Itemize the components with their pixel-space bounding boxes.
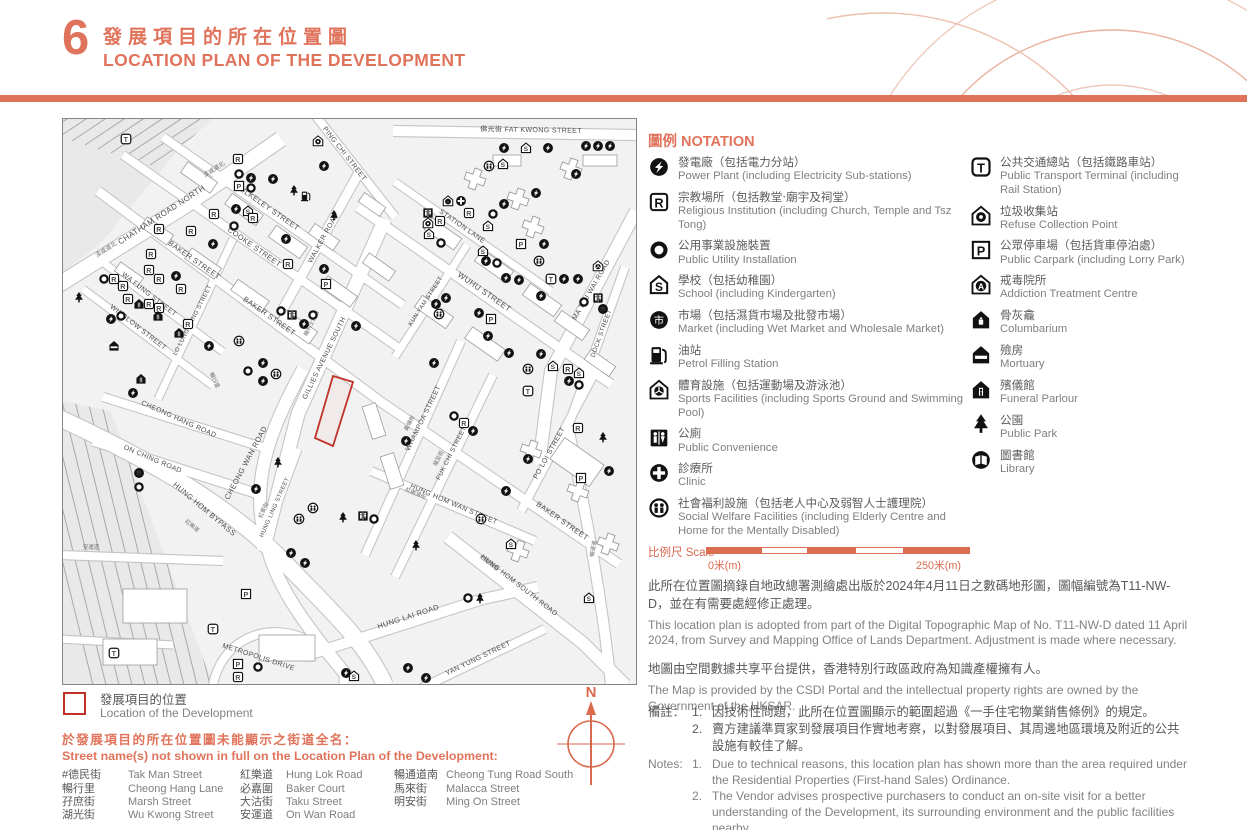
public-utility-icon [575, 381, 582, 388]
svg-text:R: R [146, 267, 152, 275]
transport-terminal-icon: T [121, 134, 131, 144]
power-plant-icon [474, 308, 484, 318]
power-plant-icon [501, 486, 511, 496]
public-utility-icon [117, 312, 124, 319]
street-name-en: Taku Street [286, 796, 394, 808]
street-name-en: Hung Lok Road [286, 769, 394, 781]
legend-label-zh: 學校（包括幼稚園） [678, 273, 836, 288]
legend-item-mortuary: 殮房Mortuary [970, 343, 1188, 372]
legend-label-en: School (including Kindergarten) [678, 288, 836, 302]
public-convenience-icon [593, 293, 602, 302]
svg-text:P: P [243, 591, 248, 599]
religious-institution-icon: R [118, 281, 127, 291]
power-plant-icon [403, 663, 413, 673]
carpark-icon: P [321, 279, 330, 289]
funeral-parlour-icon [970, 379, 992, 401]
legend-label-en: Petrol Filling Station [678, 358, 778, 372]
street-name-zh: 暢通道南 [394, 769, 446, 781]
svg-text:市: 市 [136, 469, 142, 477]
public-park-icon [970, 414, 992, 436]
religious-institution-icon: R [283, 259, 292, 269]
legend-label-en: Power Plant (including Electricity Sub-s… [678, 170, 912, 184]
refuse-collection-point-icon [970, 205, 992, 227]
religious-institution-icon: R [563, 364, 572, 374]
social-welfare-facilities-icon [648, 497, 670, 519]
public-utility-icon [493, 259, 500, 266]
religious-institution-icon: R [233, 672, 242, 682]
svg-text:市: 市 [600, 305, 606, 313]
legend-label-en: Mortuary [1000, 358, 1045, 372]
carpark-icon: P [233, 659, 242, 669]
power-plant-icon [208, 239, 218, 249]
map-frame: CHATHAM ROAD NORTH漆咸道北漆咸道北PING CHI STREE… [62, 118, 637, 685]
note-number: 1. [692, 756, 712, 772]
legend-item-addiction-treatment-centre: A戒毒院所Addiction Treatment Centre [970, 273, 1188, 302]
svg-text:R: R [146, 301, 152, 309]
svg-text:T: T [526, 388, 531, 396]
svg-text:R: R [285, 261, 291, 269]
power-plant-icon [536, 349, 546, 359]
scale-bar [706, 547, 970, 554]
street-name-zh [394, 809, 446, 821]
svg-text:R: R [235, 156, 241, 164]
public-utility-icon [309, 311, 316, 318]
public-convenience-icon [423, 208, 432, 217]
note-item-en: The Vendor advises prospective purchaser… [712, 788, 1191, 830]
svg-text:R: R [461, 420, 467, 428]
legend-item-social-welfare-facilities: 社會福利設施（包括老人中心及弱智人士護理院）Social Welfare Fac… [648, 496, 970, 539]
section-number: 6 [62, 14, 89, 63]
street-name-zh: 孖庶街 [62, 796, 128, 808]
street-name-zh: 安運道 [240, 809, 286, 821]
location-marker-label-en: Location of the Development [100, 706, 253, 720]
religious-institution-icon: R [154, 224, 163, 234]
public-utility-icon [100, 275, 107, 282]
religious-institution-icon: R [573, 423, 582, 433]
power-plant-icon [501, 273, 511, 283]
power-plant-icon [106, 314, 116, 324]
legend-label-en: Clinic [678, 476, 713, 490]
svg-text:S: S [481, 249, 486, 256]
legend-item-school: S學校（包括幼稚園）School (including Kindergarten… [648, 273, 970, 302]
decorative-arcs [827, 0, 1247, 95]
social-welfare-icon [308, 503, 318, 513]
svg-text:R: R [250, 215, 256, 223]
svg-text:S: S [486, 224, 491, 231]
street-label: 安運道 [83, 543, 100, 551]
source-paragraph-en-1: This location plan is adopted from part … [648, 618, 1188, 650]
svg-text:S: S [509, 542, 514, 549]
power-plant-icon [286, 548, 296, 558]
religious-institution-icon: R [183, 319, 192, 329]
legend-label-zh: 公廁 [678, 426, 778, 441]
power-plant-icon [171, 271, 181, 281]
power-plant-icon [504, 348, 514, 358]
page-title-zh: 發展項目的所在位置圖 [103, 22, 353, 49]
svg-text:P: P [518, 241, 523, 249]
legend-label-en: Sports Facilities (including Sports Grou… [678, 393, 970, 421]
svg-text:S: S [577, 371, 582, 378]
social-welfare-icon [534, 256, 544, 266]
clinic-icon [456, 196, 466, 206]
legend-label-zh: 公眾停車場（包括貨車停泊處） [1000, 238, 1185, 253]
power-plant-icon [300, 558, 310, 568]
transport-terminal-icon: T [208, 624, 218, 634]
social-welfare-icon [294, 514, 304, 524]
religious-institution-icon: R [233, 154, 242, 164]
public-convenience-icon [648, 427, 670, 449]
power-plant-icon [258, 358, 268, 368]
legend-label-en: Refuse Collection Point [1000, 219, 1117, 233]
svg-text:R: R [235, 674, 241, 682]
legend-item-power-plant: 發電廠（包括電力分站）Power Plant (including Electr… [648, 155, 970, 184]
legend-label-en: Funeral Parlour [1000, 393, 1078, 407]
svg-text:R: R [565, 366, 571, 374]
religious-institution-icon: R [435, 216, 444, 226]
svg-text:S: S [551, 364, 556, 371]
legend-item-refuse-collection-point: 垃圾收集站Refuse Collection Point [970, 204, 1188, 233]
power-plant-icon [571, 169, 581, 179]
street-name-en: Wu Kwong Street [128, 809, 240, 821]
notes-block: 備註： 1. 因技術性問題，此所在位置圖顯示的範圍超過《一手住宅物業銷售條例》的… [648, 704, 1191, 830]
social-welfare-icon [271, 369, 281, 379]
street-name-en: Cheong Hang Lane [128, 783, 240, 795]
power-plant-icon [581, 141, 591, 151]
power-plant-icon [431, 299, 441, 309]
power-plant-icon [499, 143, 509, 153]
legend-label-en: Public Carpark (including Lorry Park) [1000, 254, 1185, 268]
legend-label-en: Religious Institution (including Church,… [678, 205, 970, 233]
street-name-row: 湖光街Wu Kwong Street安運道On Wan Road [62, 809, 647, 821]
power-plant-icon [604, 466, 614, 476]
power-plant-icon [514, 275, 524, 285]
street-name-zh: 明安街 [394, 796, 446, 808]
accent-divider-bar [0, 95, 1247, 102]
street-name-zh: 馬來街 [394, 783, 446, 795]
carpark-icon: P [234, 181, 243, 191]
legend-label-zh: 戒毒院所 [1000, 273, 1138, 288]
power-plant-icon [351, 321, 361, 331]
legend-item-religious-institution: R宗教場所（包括教堂‧廟宇及祠堂）Religious Institution (… [648, 190, 970, 233]
legend-label-zh: 殯儀館 [1000, 378, 1078, 393]
power-plant-icon [429, 358, 439, 368]
street-name-en: Marsh Street [128, 796, 240, 808]
notation-title: 圖例 NOTATION [648, 130, 755, 151]
street-name-en: On Wan Road [286, 809, 394, 821]
carpark-icon: P [516, 239, 525, 249]
power-plant-icon [128, 388, 138, 398]
legend-label-en: Market (including Wet Market and Wholesa… [678, 323, 944, 337]
legend-item-public-convenience: 公廁Public Convenience [648, 426, 970, 455]
svg-text:市: 市 [654, 314, 664, 327]
market-icon: 市 [648, 309, 670, 331]
power-plant-icon [204, 341, 214, 351]
mortuary-icon [970, 344, 992, 366]
power-plant-icon [251, 484, 261, 494]
note-item-zh: 賣方建議準買家到發展項目作實地考察，以對發展項目、其周邊地區環境及附近的公共設施… [712, 721, 1191, 755]
public-utility-icon [370, 515, 377, 522]
library-icon [970, 449, 992, 471]
religious-institution-icon: R [248, 213, 257, 223]
power-plant-icon [499, 199, 509, 209]
religious-institution-icon: R [459, 418, 468, 428]
svg-text:R: R [156, 305, 162, 313]
legend-item-sports-facilities: 體育設施（包括運動場及游泳池）Sports Facilities (includ… [648, 378, 970, 421]
note-number: 1. [692, 704, 712, 721]
power-plant-icon [468, 426, 478, 436]
legend-label-zh: 公用事業設施裝置 [678, 238, 797, 253]
legend-item-public-park: 公園Public Park [970, 413, 1188, 442]
transport-terminal-icon: T [523, 386, 533, 396]
legend-label-zh: 垃圾收集站 [1000, 204, 1117, 219]
religious-institution-icon: R [154, 303, 163, 313]
svg-text:T: T [124, 136, 129, 144]
legend-label-en: Public Utility Installation [678, 254, 797, 268]
scale-end-value: 250米(m) [916, 557, 961, 573]
street-name-en: Tak Man Street [128, 769, 240, 781]
public-utility-icon [489, 210, 496, 217]
power-plant-icon [539, 239, 549, 249]
religious-institution-icon: R [154, 274, 163, 284]
legend-label-en: Public Park [1000, 428, 1057, 442]
development-location-swatch [63, 692, 86, 715]
columbarium-icon [970, 309, 992, 331]
public-utility-icon [580, 298, 587, 305]
social-welfare-icon [476, 514, 486, 524]
public-transport-terminal-icon: T [970, 156, 992, 178]
petrol-filling-station-icon [648, 344, 670, 366]
svg-text:R: R [156, 276, 162, 284]
svg-text:R: R [575, 425, 581, 433]
legend-label-en: Addiction Treatment Centre [1000, 288, 1138, 302]
social-welfare-icon [484, 161, 494, 171]
school-icon: S [648, 274, 670, 296]
svg-text:R: R [120, 283, 126, 291]
power-plant-icon [401, 436, 411, 446]
street-name-zh: 大沽街 [240, 796, 286, 808]
public-utility-installation-icon [648, 239, 670, 261]
power-plant-icon [268, 174, 278, 184]
power-plant-icon [573, 274, 583, 284]
svg-text:R: R [654, 195, 663, 210]
svg-text:S: S [587, 596, 592, 603]
source-paragraph-zh-2: 地圖由空間數據共享平台提供，香港特別行政區政府為知識產權擁有人。 [648, 661, 1188, 679]
power-plant-icon [593, 141, 603, 151]
public-utility-icon [464, 594, 471, 601]
power-plant-icon [536, 291, 546, 301]
carpark-icon: P [486, 314, 495, 324]
religious-institution-icon: R [209, 209, 218, 219]
religious-institution-icon: R [648, 191, 670, 213]
street-name-en: Ming On Street [446, 796, 586, 808]
transport-terminal-icon: T [546, 274, 556, 284]
scale-start-value: 0米(m) [708, 557, 741, 573]
religious-institution-icon: R [146, 249, 155, 259]
power-plant-icon [281, 234, 291, 244]
legend-label-zh: 診療所 [678, 461, 713, 476]
power-plant-icon [421, 673, 431, 683]
north-arrow-compass: N [552, 680, 630, 794]
public-carpark-icon: P [970, 239, 992, 261]
note-number: 2. [692, 788, 712, 804]
legend-label-en: Columbarium [1000, 323, 1067, 337]
public-utility-icon [235, 170, 242, 177]
public-utility-icon [450, 412, 457, 419]
religious-institution-icon: R [144, 265, 153, 275]
svg-text:R: R [188, 228, 194, 236]
svg-text:R: R [178, 286, 184, 294]
power-plant-icon [258, 376, 268, 386]
svg-text:T: T [549, 276, 554, 284]
street-name-zh: 暢行里 [62, 783, 128, 795]
power-plant-icon [231, 204, 241, 214]
svg-text:S: S [501, 162, 506, 169]
power-plant-icon [441, 293, 451, 303]
power-plant-icon [246, 173, 256, 183]
social-welfare-icon [234, 336, 244, 346]
svg-text:A: A [446, 199, 450, 205]
addiction-treatment-centre-icon: A [970, 274, 992, 296]
legend-label-zh: 骨灰龕 [1000, 308, 1067, 323]
social-welfare-icon [523, 364, 533, 374]
market-icon: 市 [134, 468, 144, 478]
svg-text:T: T [211, 626, 216, 634]
note-number: 2. [692, 721, 712, 738]
public-utility-icon [437, 239, 444, 246]
legend-item-funeral-parlour: 殯儀館Funeral Parlour [970, 378, 1188, 407]
street-name-en [446, 809, 586, 821]
legend-label-en: Social Welfare Facilities (including Eld… [678, 511, 970, 539]
power-plant-icon [299, 319, 309, 329]
legend-label-en: Library [1000, 463, 1035, 477]
svg-text:R: R [185, 321, 191, 329]
legend-label-en: Public Transport Terminal (including Rai… [1000, 170, 1188, 198]
legend-item-public-carpark: P公眾停車場（包括貨車停泊處）Public Carpark (including… [970, 238, 1188, 267]
legend-label-zh: 宗教場所（包括教堂‧廟宇及祠堂） [678, 190, 970, 205]
svg-text:S: S [352, 674, 357, 681]
legend-label-zh: 公園 [1000, 413, 1057, 428]
svg-text:R: R [111, 276, 117, 284]
religious-institution-icon: R [144, 299, 153, 309]
svg-text:P: P [488, 316, 493, 324]
legend-label-en: Public Convenience [678, 442, 778, 456]
note-item-zh: 因技術性問題，此所在位置圖顯示的範圍超過《一手住宅物業銷售條例》的規定。 [712, 704, 1191, 721]
power-plant-icon [531, 188, 541, 198]
legend-column-1: 發電廠（包括電力分站）Power Plant (including Electr… [648, 155, 970, 545]
religious-institution-icon: R [109, 274, 118, 284]
svg-text:A: A [978, 282, 984, 292]
power-plant-icon [559, 274, 569, 284]
svg-text:T: T [977, 160, 985, 175]
public-utility-icon [230, 222, 237, 229]
notes-label-zh: 備註： [648, 704, 692, 721]
power-plant-icon [481, 256, 491, 266]
svg-text:S: S [427, 232, 432, 239]
scale-bar-row: 比例尺 Scale 0米(m) 250米(m) [648, 544, 1188, 574]
power-plant-icon [483, 331, 493, 341]
market-icon: 市 [598, 304, 608, 314]
public-utility-icon [244, 367, 251, 374]
power-plant-icon [523, 454, 533, 464]
legend-item-library: 圖書館Library [970, 448, 1188, 477]
legend-item-columbarium: 骨灰龕Columbarium [970, 308, 1188, 337]
public-utility-icon [277, 307, 284, 314]
power-plant-icon [543, 143, 553, 153]
legend-item-market: 市市場（包括濕貨市場及批發市場）Market (including Wet Ma… [648, 308, 970, 337]
legend-item-petrol-filling-station: 油站Petrol Filling Station [648, 343, 970, 372]
public-convenience-icon [358, 511, 367, 520]
street-name-zh: 紅樂道 [240, 769, 286, 781]
legend-label-zh: 體育設施（包括運動場及游泳池） [678, 378, 970, 393]
clinic-icon [648, 462, 670, 484]
power-plant-icon [319, 264, 329, 274]
notes-label-en: Notes: [648, 756, 692, 772]
sports-facilities-icon [648, 379, 670, 401]
svg-text:T: T [112, 650, 117, 658]
legend-label-zh: 殮房 [1000, 343, 1045, 358]
location-plan-map: CHATHAM ROAD NORTH漆咸道北漆咸道北PING CHI STREE… [63, 119, 636, 684]
street-name-zh: 必嘉圍 [240, 783, 286, 795]
svg-text:R: R [437, 218, 443, 226]
svg-text:P: P [578, 475, 583, 483]
source-paragraph-zh-1: 此所在位置圖摘錄自地政總署測繪處出版於2024年4月11日之數碼地形圖，圖幅編號… [648, 578, 1188, 614]
note-item-en: Due to technical reasons, this location … [712, 756, 1191, 788]
legend-item-public-transport-terminal: T公共交通總站（包括鐵路車站）Public Transport Terminal… [970, 155, 1188, 198]
religious-institution-icon: R [123, 294, 132, 304]
religious-institution-icon: R [464, 208, 473, 218]
svg-text:R: R [156, 226, 162, 234]
legend-label-zh: 公共交通總站（包括鐵路車站） [1000, 155, 1188, 170]
legend-label-zh: 市場（包括濕貨市場及批發市場） [678, 308, 944, 323]
svg-text:P: P [323, 281, 328, 289]
street-name-zh: #德民街 [62, 769, 128, 781]
legend-label-zh: 社會福利設施（包括老人中心及弱智人士護理院） [678, 496, 970, 511]
street-name-zh: 湖光街 [62, 809, 128, 821]
svg-text:R: R [125, 296, 131, 304]
compass-label: N [586, 684, 597, 701]
svg-text:P: P [977, 244, 986, 259]
location-plan-page: 6 發展項目的所在位置圖 LOCATION PLAN OF THE DEVELO… [0, 0, 1247, 830]
religious-institution-icon: R [186, 226, 195, 236]
svg-text:R: R [211, 211, 217, 219]
power-plant-icon [564, 376, 574, 386]
public-utility-icon [254, 663, 261, 670]
public-utility-icon [135, 483, 142, 490]
street-name-en: Baker Court [286, 783, 394, 795]
public-convenience-icon [287, 310, 296, 319]
legend-label-zh: 圖書館 [1000, 448, 1035, 463]
transport-terminal-icon: T [109, 648, 119, 658]
legend-label-zh: 發電廠（包括電力分站） [678, 155, 912, 170]
page-title-en: LOCATION PLAN OF THE DEVELOPMENT [103, 50, 465, 71]
svg-text:R: R [466, 210, 472, 218]
svg-text:P: P [236, 183, 241, 191]
svg-text:S: S [524, 146, 529, 153]
svg-text:P: P [235, 661, 240, 669]
legend-item-public-utility-installation: 公用事業設施裝置Public Utility Installation [648, 238, 970, 267]
scale-label: 比例尺 Scale [648, 544, 714, 560]
social-welfare-icon [434, 309, 444, 319]
carpark-icon: P [241, 589, 250, 599]
location-marker-legend: 發展項目的位置 Location of the Development [62, 690, 362, 726]
legend: 發電廠（包括電力分站）Power Plant (including Electr… [648, 155, 1188, 545]
power-plant-icon [319, 161, 329, 171]
svg-text:R: R [148, 251, 154, 259]
svg-text:S: S [655, 280, 663, 294]
religious-institution-icon: R [176, 284, 185, 294]
power-plant-icon [605, 141, 615, 151]
carpark-icon: P [576, 473, 585, 483]
